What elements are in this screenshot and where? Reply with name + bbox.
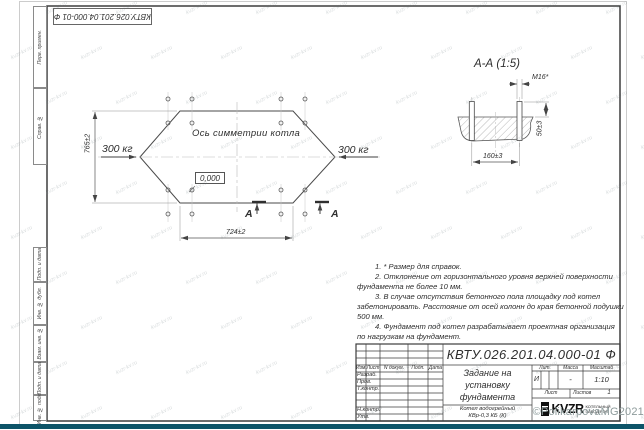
watermark-tile: kvzr-kv.ru (45, 0, 68, 16)
watermark-tile: kvzr-kv.ru (185, 270, 208, 286)
watermark-layer: kvzr-kv.rukvzr-kv.rukvzr-kv.rukvzr-kv.ru… (0, 0, 644, 424)
watermark-tile: kvzr-kv.ru (570, 225, 593, 241)
watermark-tile: kvzr-kv.ru (10, 225, 33, 241)
watermark-tile: kvzr-kv.ru (290, 135, 313, 151)
watermark-tile: kvzr-kv.ru (325, 90, 348, 106)
watermark-tile: kvzr-kv.ru (185, 180, 208, 196)
watermark-tile: kvzr-kv.ru (80, 315, 103, 331)
watermark-tile: kvzr-kv.ru (10, 405, 33, 421)
drawing-sheet: КВТУ.026.201.04.000-01 Ф Перв. примен. С… (0, 0, 644, 430)
watermark-tile: kvzr-kv.ru (430, 315, 453, 331)
watermark-tile: kvzr-kv.ru (290, 225, 313, 241)
watermark-tile: kvzr-kv.ru (325, 0, 348, 16)
watermark-tile: kvzr-kv.ru (115, 360, 138, 376)
watermark-tile: kvzr-kv.ru (360, 135, 383, 151)
watermark-tile: kvzr-kv.ru (150, 405, 173, 421)
watermark-tile: kvzr-kv.ru (255, 180, 278, 196)
watermark-tile: kvzr-kv.ru (465, 360, 488, 376)
watermark-tile: kvzr-kv.ru (220, 315, 243, 331)
watermark-tile: kvzr-kv.ru (395, 180, 418, 196)
watermark-tile: kvzr-kv.ru (605, 90, 628, 106)
watermark-tile: kvzr-kv.ru (535, 360, 558, 376)
watermark-tile: kvzr-kv.ru (325, 180, 348, 196)
watermark-tile: kvzr-kv.ru (640, 225, 644, 241)
copyright-watermark: ©PolikarpovaMG2021 (533, 406, 644, 418)
watermark-tile: kvzr-kv.ru (500, 405, 523, 421)
watermark-tile: kvzr-kv.ru (220, 45, 243, 61)
watermark-tile: kvzr-kv.ru (220, 135, 243, 151)
watermark-tile: kvzr-kv.ru (115, 270, 138, 286)
watermark-tile: kvzr-kv.ru (430, 135, 453, 151)
watermark-tile: kvzr-kv.ru (290, 45, 313, 61)
watermark-tile: kvzr-kv.ru (80, 135, 103, 151)
watermark-tile: kvzr-kv.ru (45, 90, 68, 106)
watermark-tile: kvzr-kv.ru (465, 90, 488, 106)
watermark-tile: kvzr-kv.ru (535, 90, 558, 106)
watermark-tile: kvzr-kv.ru (395, 90, 418, 106)
watermark-tile: kvzr-kv.ru (535, 270, 558, 286)
watermark-tile: kvzr-kv.ru (80, 405, 103, 421)
watermark-tile: kvzr-kv.ru (80, 45, 103, 61)
watermark-tile: kvzr-kv.ru (45, 270, 68, 286)
watermark-tile: kvzr-kv.ru (465, 0, 488, 16)
watermark-tile: kvzr-kv.ru (255, 270, 278, 286)
watermark-tile: kvzr-kv.ru (10, 315, 33, 331)
watermark-tile: kvzr-kv.ru (535, 0, 558, 16)
watermark-tile: kvzr-kv.ru (605, 180, 628, 196)
watermark-tile: kvzr-kv.ru (605, 360, 628, 376)
watermark-tile: kvzr-kv.ru (605, 0, 628, 16)
watermark-tile: kvzr-kv.ru (535, 180, 558, 196)
watermark-tile: kvzr-kv.ru (500, 225, 523, 241)
watermark-tile: kvzr-kv.ru (45, 180, 68, 196)
watermark-tile: kvzr-kv.ru (360, 315, 383, 331)
watermark-tile: kvzr-kv.ru (360, 225, 383, 241)
watermark-tile: kvzr-kv.ru (395, 0, 418, 16)
watermark-tile: kvzr-kv.ru (185, 360, 208, 376)
watermark-tile: kvzr-kv.ru (395, 270, 418, 286)
watermark-tile: kvzr-kv.ru (255, 0, 278, 16)
watermark-tile: kvzr-kv.ru (255, 360, 278, 376)
bottom-edge-bar (0, 424, 644, 429)
watermark-tile: kvzr-kv.ru (10, 135, 33, 151)
watermark-tile: kvzr-kv.ru (605, 270, 628, 286)
watermark-tile: kvzr-kv.ru (360, 45, 383, 61)
watermark-tile: kvzr-kv.ru (220, 405, 243, 421)
watermark-tile: kvzr-kv.ru (290, 315, 313, 331)
watermark-tile: kvzr-kv.ru (570, 45, 593, 61)
watermark-tile: kvzr-kv.ru (150, 45, 173, 61)
watermark-tile: kvzr-kv.ru (10, 45, 33, 61)
watermark-tile: kvzr-kv.ru (325, 360, 348, 376)
watermark-tile: kvzr-kv.ru (465, 180, 488, 196)
watermark-tile: kvzr-kv.ru (360, 405, 383, 421)
watermark-tile: kvzr-kv.ru (220, 225, 243, 241)
watermark-tile: kvzr-kv.ru (570, 315, 593, 331)
watermark-tile: kvzr-kv.ru (430, 405, 453, 421)
watermark-tile: kvzr-kv.ru (325, 270, 348, 286)
watermark-tile: kvzr-kv.ru (640, 315, 644, 331)
watermark-tile: kvzr-kv.ru (500, 315, 523, 331)
watermark-tile: kvzr-kv.ru (150, 225, 173, 241)
watermark-tile: kvzr-kv.ru (395, 360, 418, 376)
watermark-tile: kvzr-kv.ru (500, 45, 523, 61)
watermark-tile: kvzr-kv.ru (185, 90, 208, 106)
watermark-tile: kvzr-kv.ru (430, 225, 453, 241)
watermark-tile: kvzr-kv.ru (115, 0, 138, 16)
watermark-tile: kvzr-kv.ru (640, 135, 644, 151)
watermark-tile: kvzr-kv.ru (430, 45, 453, 61)
watermark-tile: kvzr-kv.ru (45, 360, 68, 376)
watermark-tile: kvzr-kv.ru (255, 90, 278, 106)
watermark-tile: kvzr-kv.ru (150, 135, 173, 151)
watermark-tile: kvzr-kv.ru (465, 270, 488, 286)
watermark-tile: kvzr-kv.ru (115, 90, 138, 106)
watermark-tile: kvzr-kv.ru (115, 180, 138, 196)
watermark-tile: kvzr-kv.ru (570, 135, 593, 151)
watermark-tile: kvzr-kv.ru (640, 45, 644, 61)
watermark-tile: kvzr-kv.ru (290, 405, 313, 421)
watermark-tile: kvzr-kv.ru (185, 0, 208, 16)
watermark-tile: kvzr-kv.ru (150, 315, 173, 331)
watermark-tile: kvzr-kv.ru (80, 225, 103, 241)
watermark-tile: kvzr-kv.ru (500, 135, 523, 151)
